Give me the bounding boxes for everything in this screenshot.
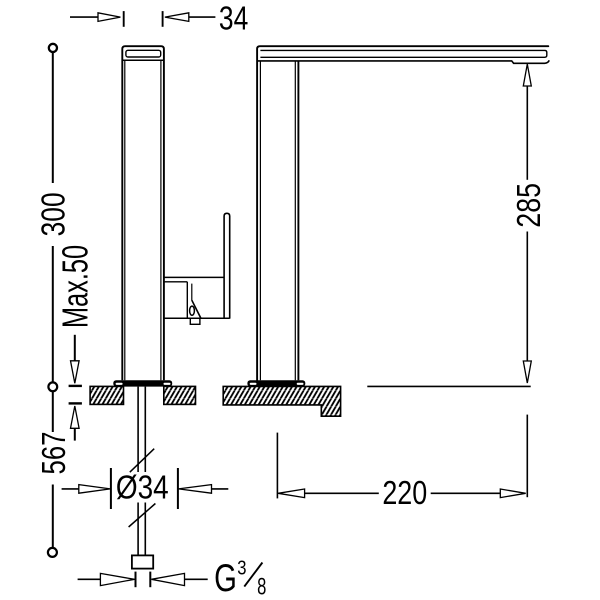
svg-text:300: 300	[36, 192, 72, 236]
svg-text:285: 285	[512, 183, 548, 228]
svg-text:567: 567	[36, 432, 73, 475]
svg-text:Ø34: Ø34	[116, 469, 169, 506]
svg-text:8: 8	[257, 573, 266, 600]
svg-text:3: 3	[237, 556, 246, 579]
svg-text:G: G	[214, 557, 237, 600]
svg-text:Max.50: Max.50	[55, 245, 95, 328]
svg-text:220: 220	[382, 476, 427, 512]
svg-text:34: 34	[219, 1, 248, 37]
